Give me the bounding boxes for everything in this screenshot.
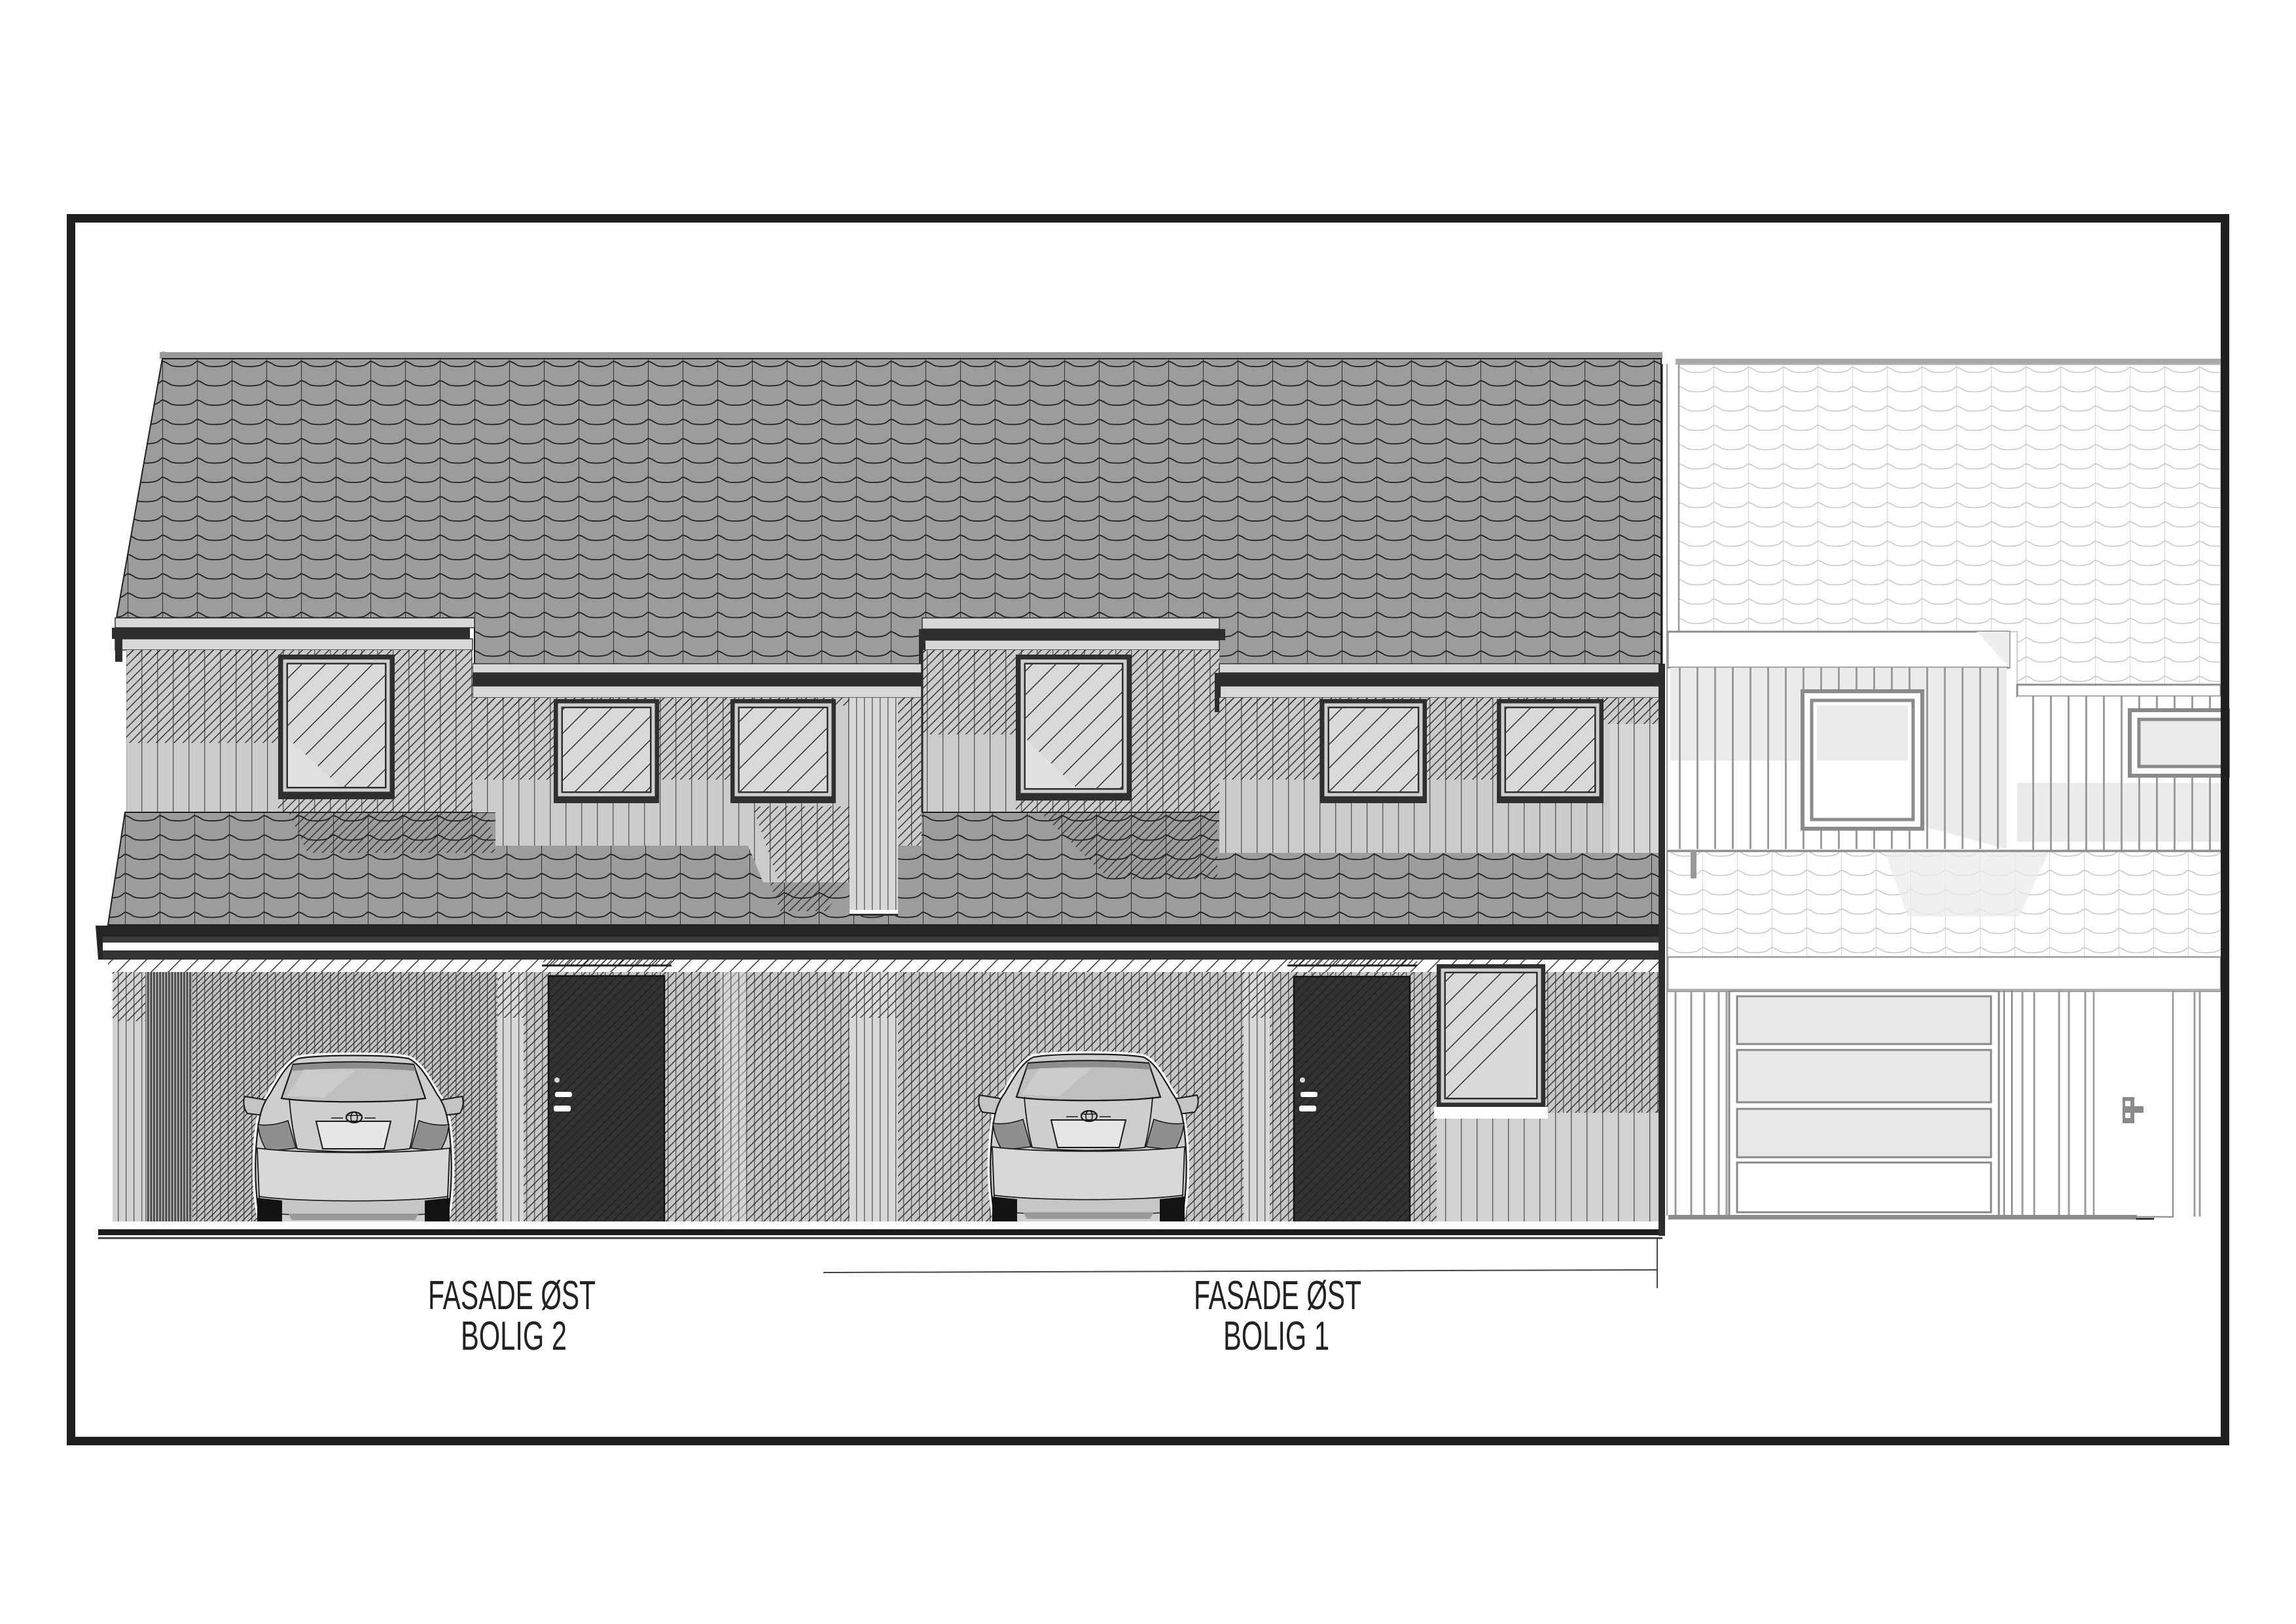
svg-text:FASADE ØST: FASADE ØST bbox=[428, 1273, 596, 1318]
svg-text:BOLIG 2: BOLIG 2 bbox=[461, 1314, 567, 1359]
svg-text:BOLIG 1: BOLIG 1 bbox=[1223, 1314, 1329, 1359]
svg-text:FASADE ØST: FASADE ØST bbox=[1194, 1273, 1361, 1318]
